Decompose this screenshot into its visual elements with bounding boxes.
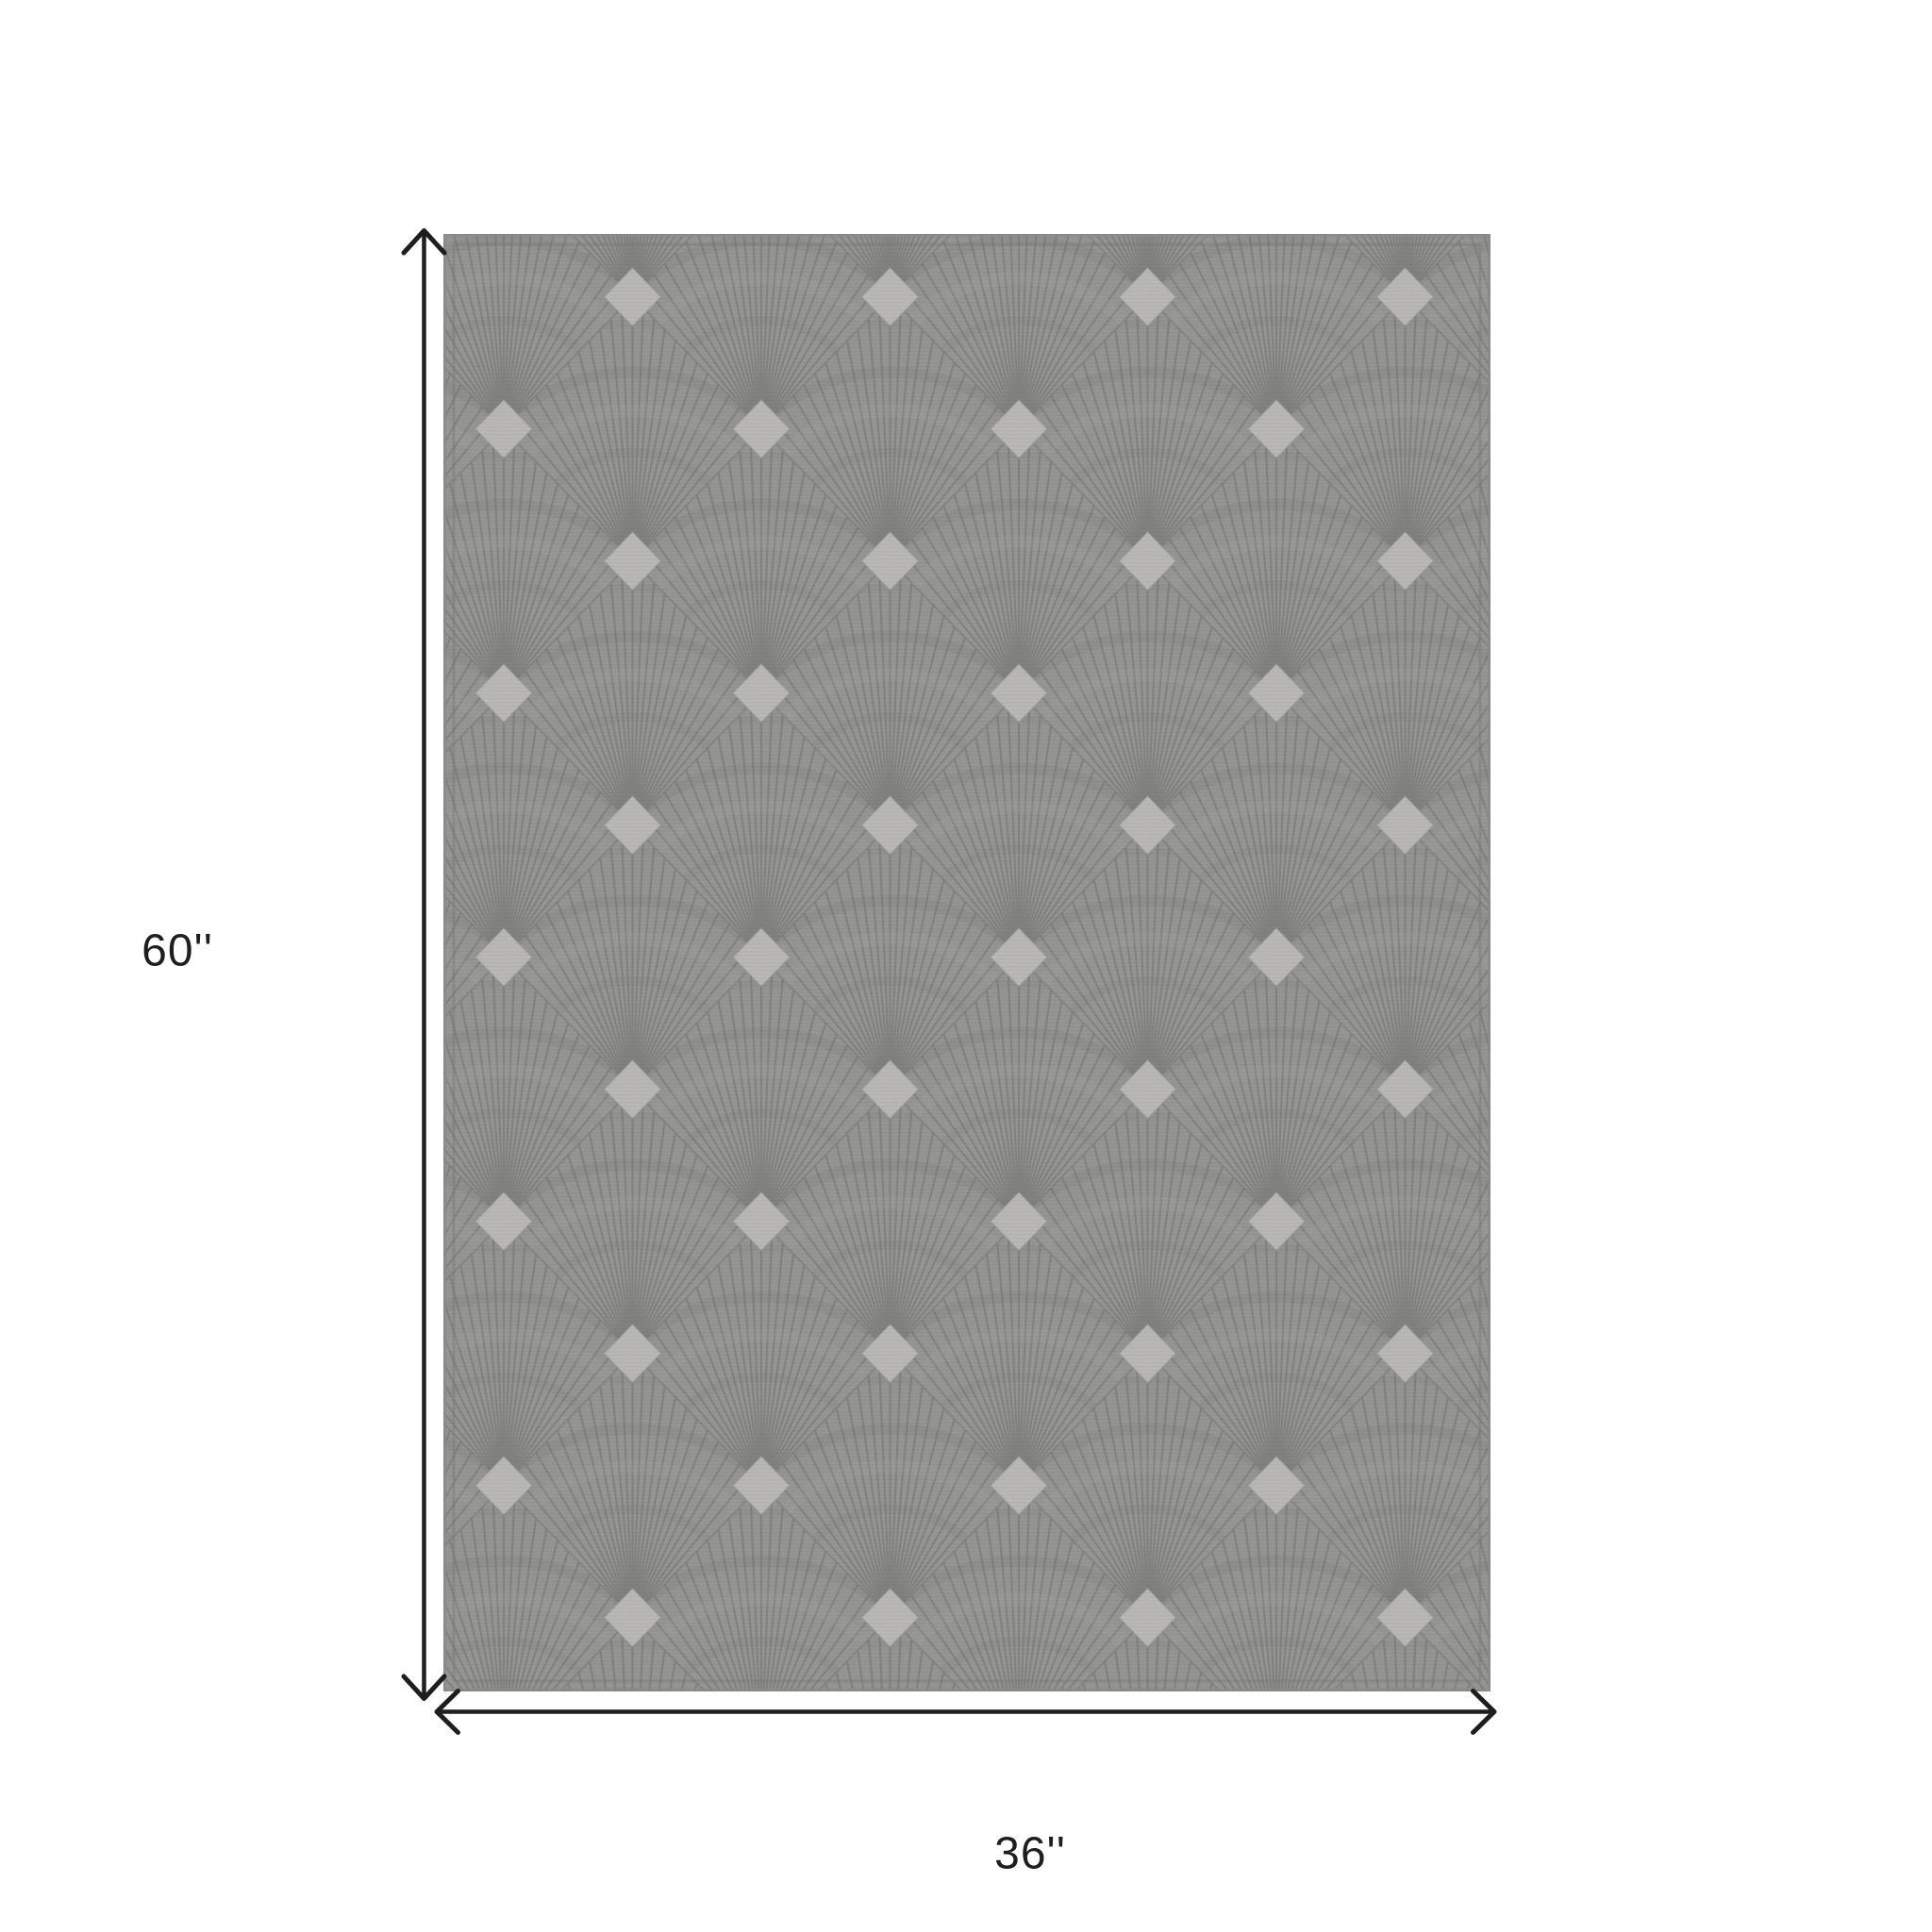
arrowhead-right-icon [1474,1691,1495,1733]
width-dimension-label: 36'' [994,1828,1066,1880]
rug-texture-light [443,234,1491,1691]
product-dimension-diagram: 60'' 36'' [0,0,1932,1932]
rug-pattern-svg [443,234,1491,1691]
arrowhead-up-icon [404,231,444,254]
rug-image [443,234,1491,1691]
height-dimension-label: 60'' [142,925,213,977]
arrowhead-down-icon [404,1676,444,1699]
arrowhead-left-icon [437,1691,458,1733]
height-arrow [404,231,444,1699]
width-arrow [437,1691,1494,1733]
